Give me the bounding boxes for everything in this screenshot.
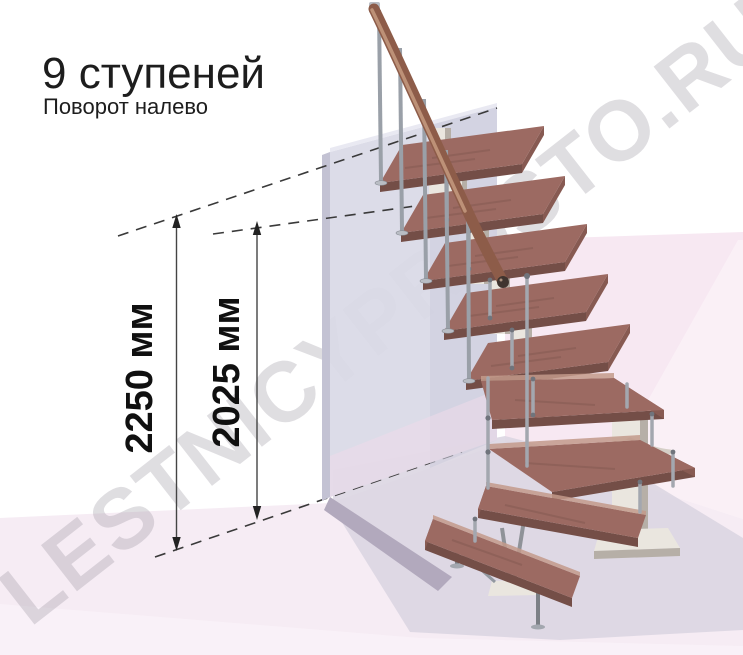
- title-block: 9 ступеней Поворот налево: [42, 49, 265, 119]
- dimension-2250-label: 2250 мм: [119, 302, 161, 453]
- dimension-2025-label: 2025 мм: [206, 296, 248, 447]
- page-subtitle: Поворот налево: [43, 94, 208, 119]
- handrail-end-cap: [497, 276, 509, 288]
- back-wall-left-edge: [322, 152, 330, 501]
- page-title: 9 ступеней: [42, 49, 265, 98]
- scene-canvas: LESTNICYPROSTO.RU: [0, 0, 743, 655]
- stair-diagram: LESTNICYPROSTO.RU: [0, 0, 743, 655]
- arrow-up-icon: [172, 214, 180, 228]
